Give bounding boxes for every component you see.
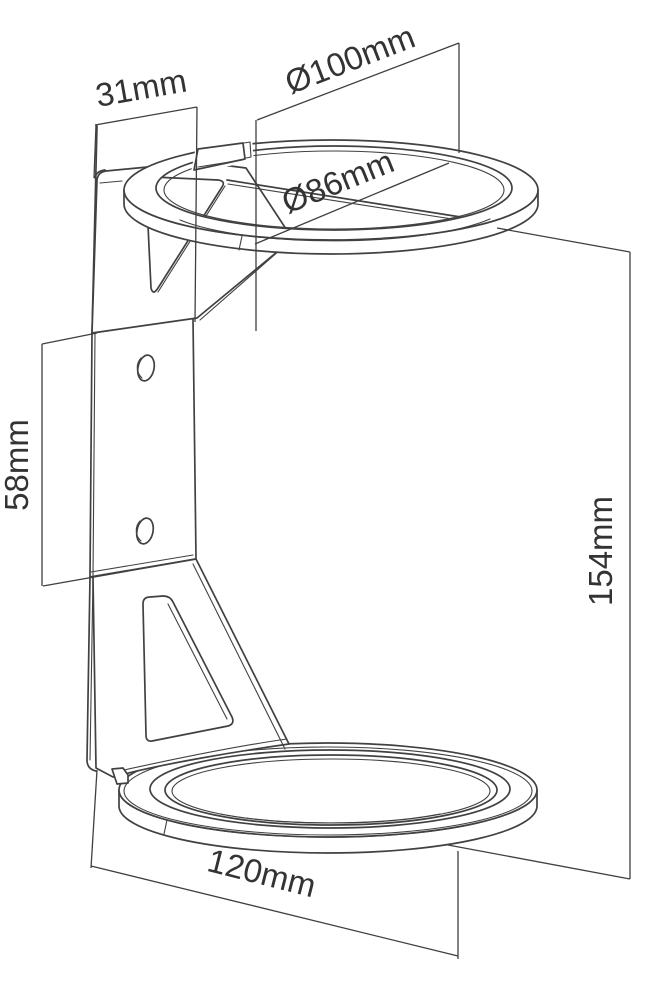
dim-label-wall-offset: 31mm [93,61,190,113]
screw-hole-bottom [134,517,155,546]
dim-label-outer-diameter: Ø100mm [280,18,420,101]
screw-hole-top [135,354,156,383]
bracket-drawing: 31mm Ø100mm Ø86mm 58mm 154mm [0,0,667,1000]
dim-label-inner-diameter: Ø86mm [276,142,399,220]
dim-hole-spacing: 58mm [0,333,97,586]
technical-drawing-page: 31mm Ø100mm Ø86mm 58mm 154mm [0,0,667,1000]
dim-label-hole-spacing: 58mm [0,419,35,511]
dim-label-total-height: 154mm [582,496,619,606]
